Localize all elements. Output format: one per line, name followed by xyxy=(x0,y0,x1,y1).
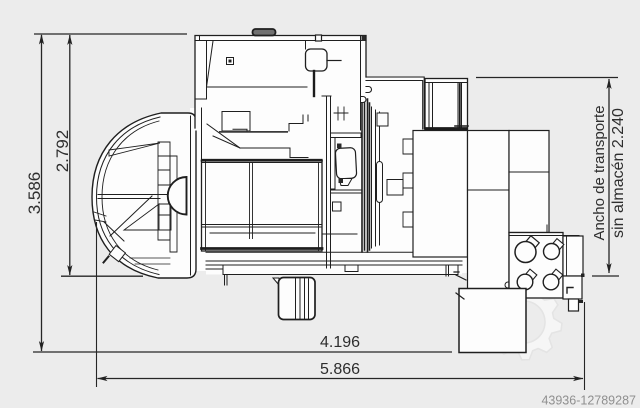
svg-text:3.586: 3.586 xyxy=(25,172,44,215)
svg-text:Ancho de transporte: Ancho de transporte xyxy=(591,105,608,240)
svg-text:4.196: 4.196 xyxy=(320,334,360,351)
svg-text:43936-12789287: 43936-12789287 xyxy=(541,394,636,408)
svg-text:2.792: 2.792 xyxy=(53,130,72,173)
svg-text:5.866: 5.866 xyxy=(320,361,360,378)
svg-text:sin almacén 2.240: sin almacén 2.240 xyxy=(610,108,627,238)
